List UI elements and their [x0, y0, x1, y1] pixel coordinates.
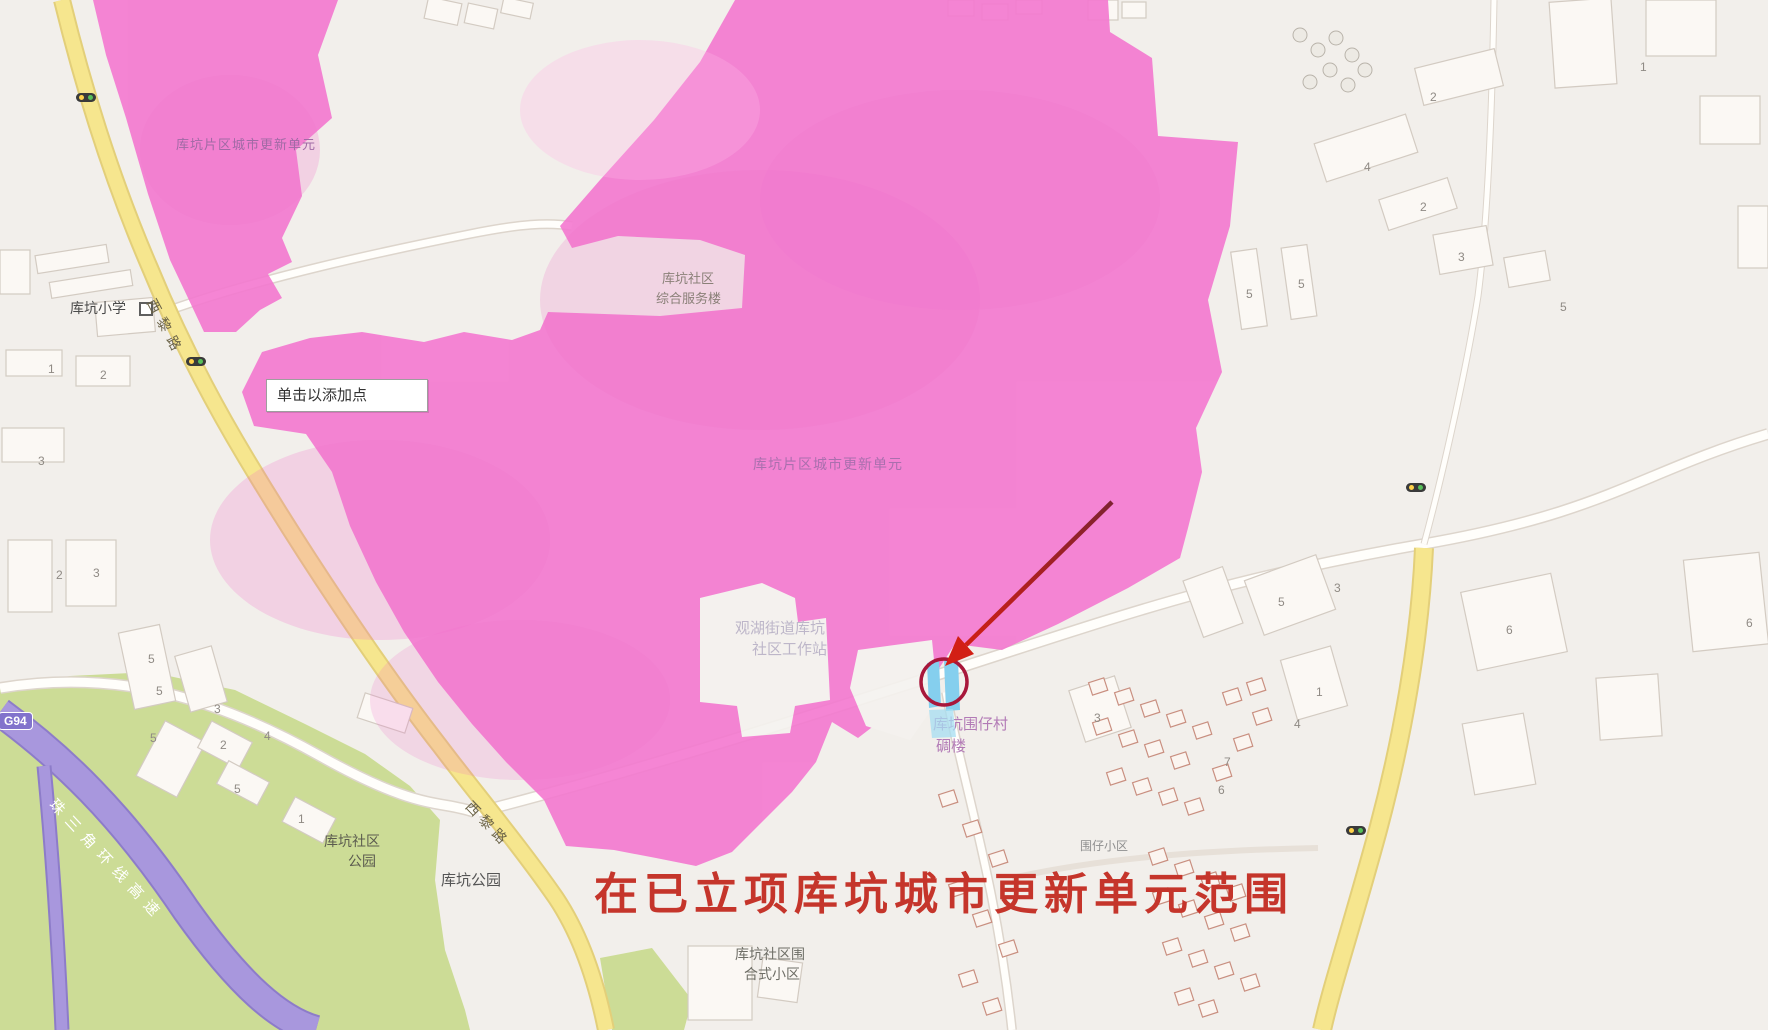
- building-number-label: 6: [1506, 623, 1513, 637]
- building-number-label: 5: [150, 731, 157, 745]
- building-number-label: 3: [1094, 711, 1101, 725]
- building-number-label: 5: [148, 652, 155, 666]
- workstation-label-line2: 社区工作站: [752, 641, 827, 658]
- building-number-label: 5: [1278, 595, 1285, 609]
- service-building-label-line2: 综合服务楼: [656, 292, 721, 307]
- overlay-unit-label-nw: 库坑片区城市更新单元: [176, 138, 316, 153]
- building-number-label: 1: [1640, 60, 1647, 74]
- building-number-label: 1: [1316, 685, 1323, 699]
- building-number-label: 4: [264, 729, 271, 743]
- building-number-label: 2: [1430, 90, 1437, 104]
- expressway-shield-g94: G94: [0, 712, 33, 730]
- traffic-light-icon: [1406, 483, 1426, 492]
- community-park-label-line2: 公园: [348, 853, 376, 869]
- weizai-estate-label: 围仔小区: [1080, 840, 1128, 854]
- building-number-label: 2: [56, 568, 63, 582]
- building-number-label: 5: [1560, 300, 1567, 314]
- building-number-label: 2: [1420, 200, 1427, 214]
- building-number-label: 5: [156, 684, 163, 698]
- annotation-caption: 在已立项库坑城市更新单元范围: [594, 858, 1294, 922]
- building-number-label: 7: [1224, 755, 1231, 769]
- diaolou-label-line2: 碉楼: [936, 738, 966, 755]
- workstation-label-line1: 观湖街道库坑: [735, 620, 825, 637]
- building-number-label: 3: [1458, 250, 1465, 264]
- building-number-label: 3: [93, 566, 100, 580]
- traffic-light-icon: [186, 357, 206, 366]
- building-number-label: 6: [1746, 616, 1753, 630]
- traffic-light-icon: [76, 93, 96, 102]
- add-point-tooltip: 单击以添加点: [266, 379, 428, 412]
- building-number-label: 5: [1246, 287, 1253, 301]
- estate-label-line2: 合式小区: [744, 966, 800, 982]
- building-number-label: 3: [1334, 581, 1341, 595]
- building-number-label: 2: [220, 738, 227, 752]
- park-label: 库坑公园: [441, 872, 501, 889]
- building-number-label: 6: [1218, 783, 1225, 797]
- school-label: 库坑小学: [70, 300, 126, 316]
- diaolou-label-line1: 库坑围仔村: [933, 716, 1008, 733]
- park-area-small: [600, 948, 692, 1030]
- building-number-label: 3: [214, 702, 221, 716]
- trees-group: [1293, 28, 1372, 92]
- building-number-label: 1: [48, 362, 55, 376]
- building-number-label: 5: [234, 782, 241, 796]
- building-number-label: 4: [1294, 717, 1301, 731]
- service-building-label-line1: 库坑社区: [662, 272, 714, 287]
- building-number-label: 4: [1364, 160, 1371, 174]
- building-number-label: 3: [38, 454, 45, 468]
- map-stage: 库坑片区城市更新单元 库坑片区城市更新单元 库坑小学 库坑社区 综合服务楼 观湖…: [0, 0, 1768, 1030]
- estate-label-line1: 库坑社区围: [735, 946, 805, 962]
- community-park-label-line1: 库坑社区: [324, 833, 380, 849]
- traffic-light-icon: [1346, 826, 1366, 835]
- building-number-label: 1: [298, 812, 305, 826]
- building-number-label: 2: [100, 368, 107, 382]
- overlay-unit-label-center: 库坑片区城市更新单元: [753, 456, 903, 472]
- building-number-label: 5: [1298, 277, 1305, 291]
